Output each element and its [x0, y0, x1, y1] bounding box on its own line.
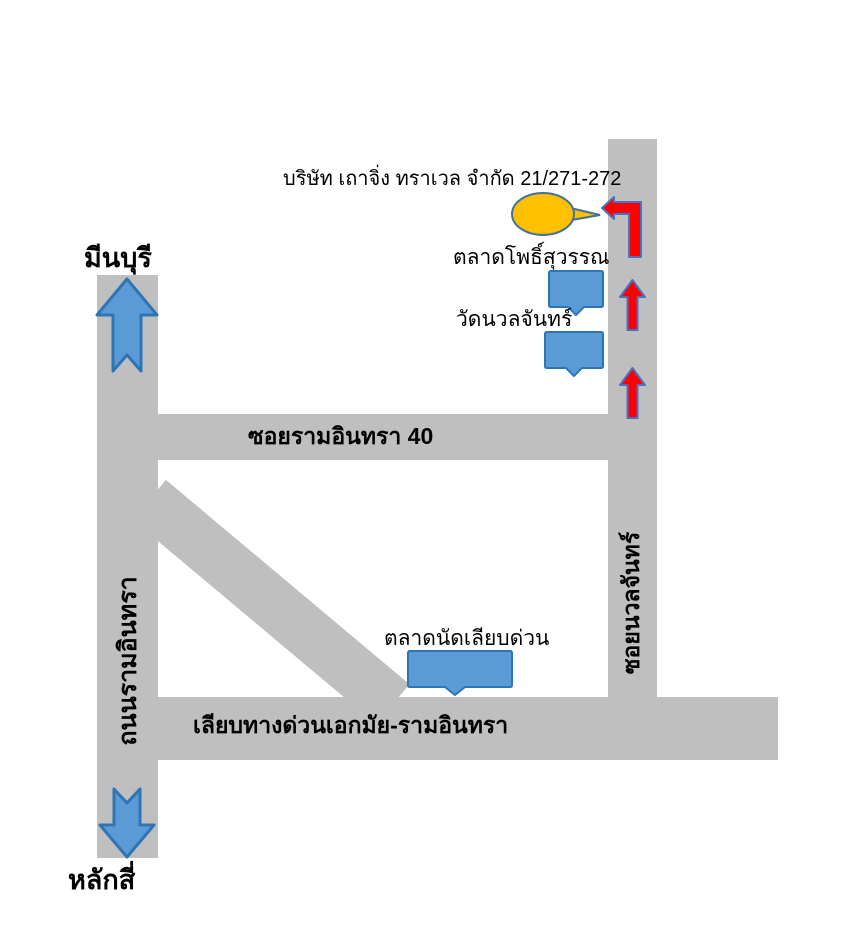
blue-bubble-icon: [544, 331, 604, 377]
red-turn-left-arrow-icon: [601, 194, 642, 258]
up-arrow-icon: [95, 277, 159, 373]
route-arrow-2: [619, 279, 646, 331]
blue-bubble-icon: [407, 650, 513, 696]
road-label-soi-nuanchan: ซอยนวลจันทร์: [614, 532, 650, 674]
endpoint-label-laksi: หลักสี่: [68, 858, 135, 901]
road-diagonal-link: [132, 480, 409, 724]
road-label-soi-ramintra-40: ซอยรามอินทรา 40: [248, 419, 433, 455]
road-label-liap-expressway: เลียบทางด่วนเอกมัย-รามอินทรา: [193, 708, 508, 744]
place-marker-talat-nat-liap-duan: [407, 650, 513, 696]
place-marker-wat-nuanchan: [544, 331, 604, 377]
endpoint-label-minburi: มีนบุรี: [84, 236, 152, 279]
destination-balloon: [510, 190, 602, 238]
red-up-arrow-icon: [619, 367, 646, 419]
minburi-direction: [95, 277, 159, 373]
down-arrow-icon: [98, 787, 156, 859]
laksi-direction: [98, 787, 156, 859]
route-arrow-1: [619, 367, 646, 419]
route-arrow-3: [601, 194, 642, 258]
yellow-balloon-icon: [510, 190, 602, 238]
red-up-arrow-icon: [619, 279, 646, 331]
route-map: ซอยรามอินทรา 40 เลียบทางด่วนเอกมัย-รามอิ…: [0, 0, 850, 946]
road-label-thanon-ramintra: ถนนรามอินทรา: [108, 576, 148, 745]
